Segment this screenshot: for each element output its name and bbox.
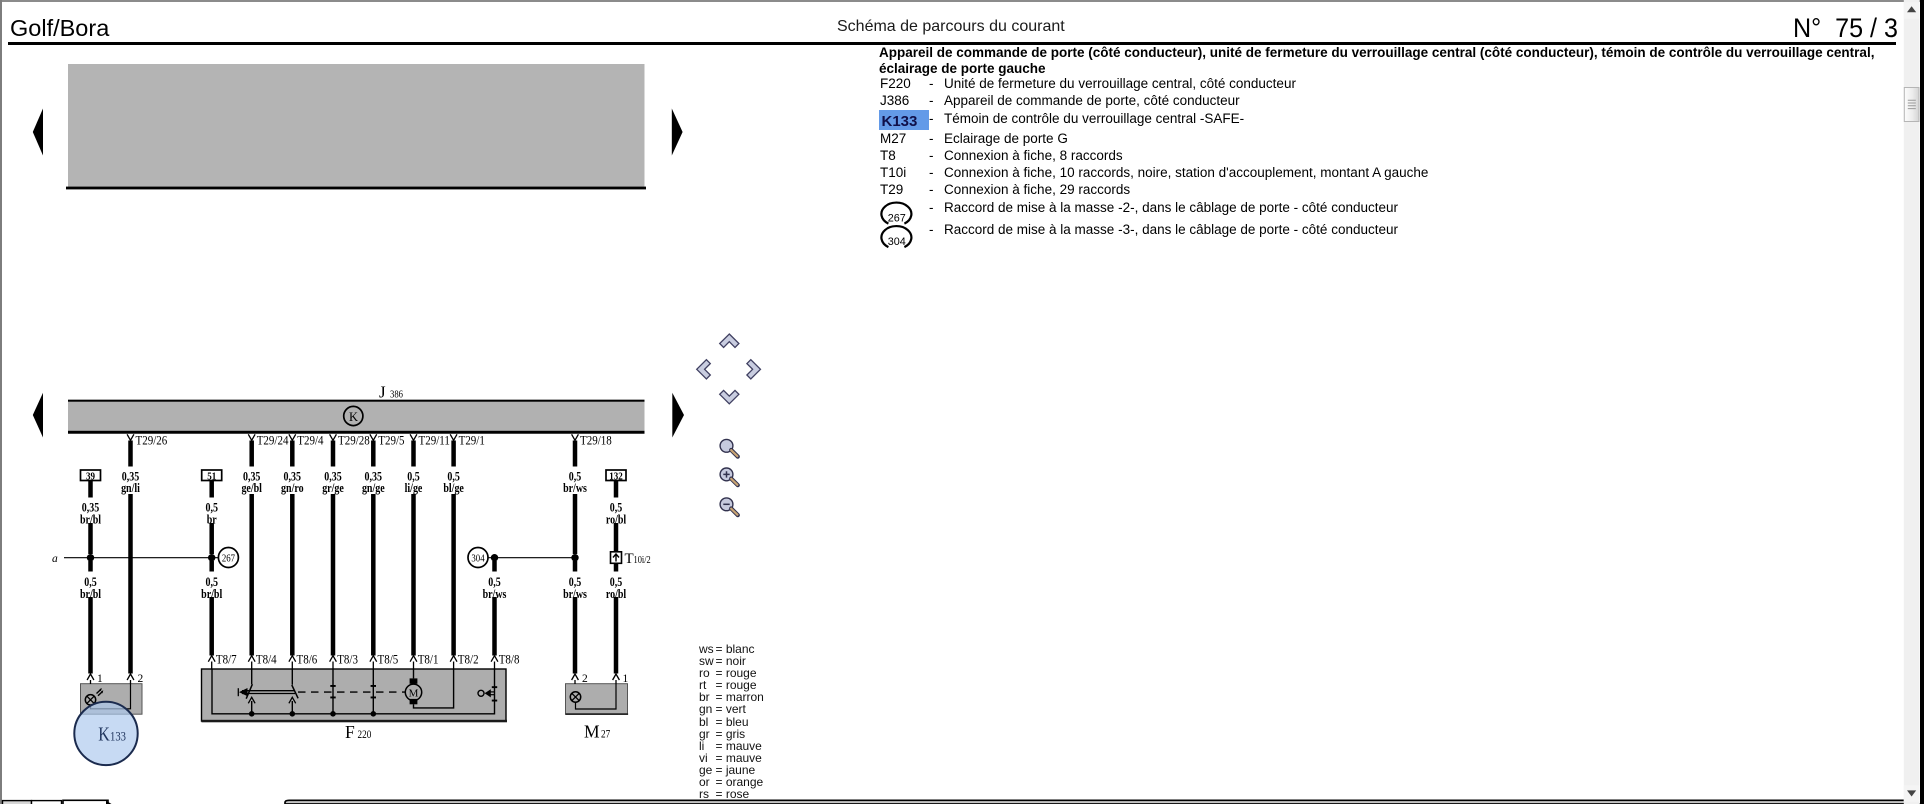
svg-text:39: 39	[86, 471, 95, 483]
svg-text:T: T	[625, 551, 634, 567]
svg-text:br/ws: br/ws	[483, 588, 507, 601]
svg-text:J: J	[379, 383, 386, 402]
svg-text:T29/28: T29/28	[338, 434, 370, 448]
svg-text:gn/li: gn/li	[121, 482, 140, 495]
svg-text:T29/5: T29/5	[378, 434, 404, 448]
svg-text:bl/ge: bl/ge	[443, 482, 464, 495]
svg-text:T29/18: T29/18	[580, 434, 612, 448]
svg-text:ro/bl: ro/bl	[606, 513, 626, 526]
svg-text:51: 51	[207, 471, 216, 483]
svg-text:T8/7: T8/7	[216, 653, 237, 667]
svg-text:br/ws: br/ws	[563, 588, 587, 601]
svg-text:li/ge: li/ge	[405, 482, 423, 495]
svg-text:T29/26: T29/26	[136, 434, 168, 448]
svg-text:M: M	[409, 688, 419, 700]
svg-text:a: a	[52, 553, 58, 565]
svg-text:T8/2: T8/2	[458, 653, 479, 667]
svg-text:ro/bl: ro/bl	[606, 588, 626, 601]
svg-text:K: K	[98, 723, 110, 745]
svg-text:27: 27	[601, 729, 610, 741]
svg-text:gr/ge: gr/ge	[322, 482, 344, 495]
svg-text:br/bl: br/bl	[201, 588, 222, 601]
svg-text:T8/8: T8/8	[499, 653, 520, 667]
svg-text:2: 2	[582, 673, 588, 685]
svg-text:T29/11: T29/11	[419, 434, 450, 448]
svg-text:br/bl: br/bl	[80, 513, 101, 526]
svg-text:2: 2	[138, 673, 144, 685]
svg-text:br: br	[207, 513, 217, 526]
svg-text:K: K	[349, 410, 358, 424]
svg-text:T8/6: T8/6	[297, 653, 318, 667]
svg-text:10i/2: 10i/2	[634, 555, 651, 566]
svg-text:133: 133	[110, 728, 126, 743]
svg-text:132: 132	[609, 471, 623, 483]
svg-text:267: 267	[222, 554, 235, 565]
svg-text:gn/ro: gn/ro	[281, 482, 304, 495]
svg-text:gn/ge: gn/ge	[362, 482, 385, 495]
svg-text:386: 386	[390, 389, 403, 401]
svg-text:T8/1: T8/1	[418, 653, 439, 667]
svg-text:T8/3: T8/3	[337, 653, 358, 667]
svg-text:T8/4: T8/4	[256, 653, 277, 667]
svg-text:1: 1	[97, 673, 103, 685]
svg-text:304: 304	[888, 236, 906, 248]
svg-text:1: 1	[623, 673, 629, 685]
svg-text:br/bl: br/bl	[80, 588, 101, 601]
svg-text:T29/4: T29/4	[297, 434, 323, 448]
svg-text:M: M	[584, 722, 600, 742]
svg-text:ge/bl: ge/bl	[241, 482, 262, 495]
svg-text:220: 220	[358, 729, 372, 741]
svg-text:267: 267	[888, 213, 906, 225]
svg-text:T29/1: T29/1	[459, 434, 485, 448]
svg-text:304: 304	[471, 554, 484, 565]
svg-text:br/ws: br/ws	[563, 482, 587, 495]
svg-text:F: F	[345, 722, 355, 742]
svg-text:T29/24: T29/24	[257, 434, 289, 448]
svg-text:T8/5: T8/5	[378, 653, 399, 667]
